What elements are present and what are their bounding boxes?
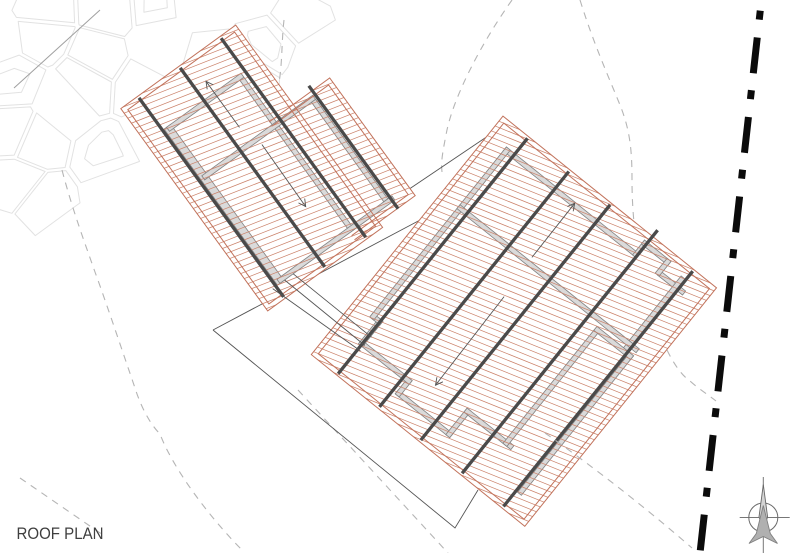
svg-text:ROOF PLAN: ROOF PLAN [17, 524, 104, 543]
